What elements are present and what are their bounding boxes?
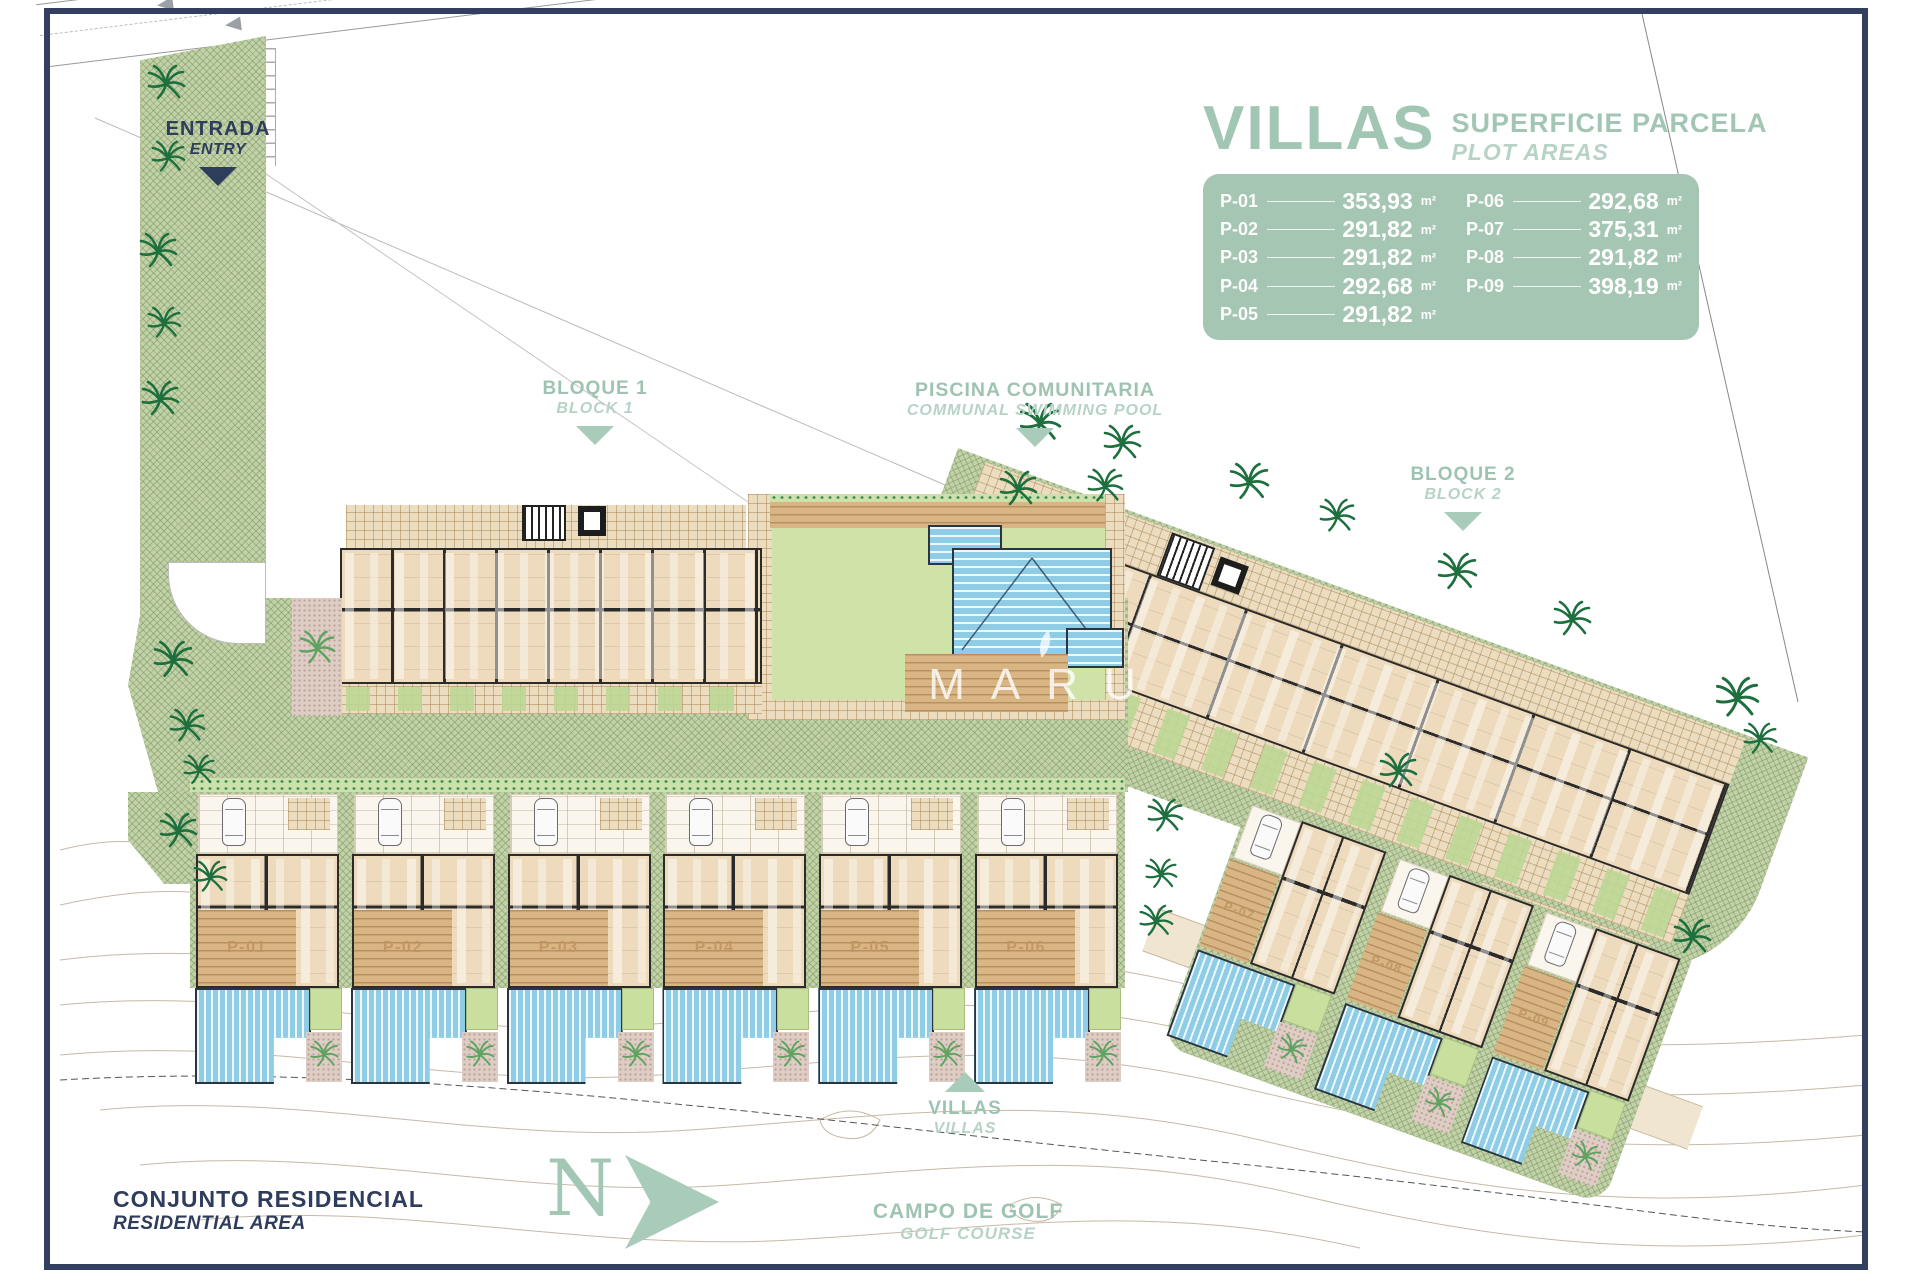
lawn-patch (622, 988, 654, 1030)
pool-sign-title: PISCINA COMUNITARIA (900, 379, 1170, 402)
plot-area-unit: m² (1421, 279, 1436, 293)
plot-id: P-02 (1220, 219, 1260, 240)
villa-deck: P-03 (510, 910, 608, 986)
leader-line (1513, 257, 1581, 258)
plot-id: P-06 (1466, 191, 1506, 212)
palm-tree-icon (182, 754, 216, 788)
plot-id: P-08 (1466, 247, 1506, 268)
villas-sign: VILLAS VILLAS (905, 1072, 1025, 1138)
block2-sign-title: BLOQUE 2 (1350, 464, 1576, 486)
north-arrow: N (546, 1150, 719, 1254)
leader-line (1513, 286, 1581, 287)
palm-tree-icon (1742, 722, 1778, 758)
legend-row-p-04: P-04 292,68 m² (1220, 272, 1436, 300)
lawn-patch (933, 988, 965, 1030)
plot-id: P-05 (1220, 304, 1260, 325)
courtyard (292, 598, 342, 716)
plot-area-unit: m² (1421, 251, 1436, 265)
plot-area-unit: m² (1667, 194, 1682, 208)
plot-id: P-03 (1220, 247, 1260, 268)
block1-lift (578, 506, 606, 536)
lawn-patch (310, 988, 342, 1030)
entry-sign-title: ENTRADA (153, 118, 283, 141)
palm-tree-icon (1714, 676, 1760, 722)
plot-area-value: 398,19 (1588, 273, 1658, 300)
palm-tree-icon (1672, 918, 1712, 958)
pergola (755, 798, 797, 830)
plot-label-p-04: P-04 (665, 910, 763, 986)
plot-area-unit: m² (1667, 223, 1682, 237)
tree-icon (309, 1040, 339, 1070)
patio (1085, 1032, 1121, 1082)
block2-sign: BLOQUE 2 BLOCK 2 (1350, 464, 1576, 531)
plot-label-p-05: P-05 (821, 910, 919, 986)
leader-line (1267, 229, 1335, 230)
legend-title: VILLAS (1203, 100, 1435, 159)
pergola (600, 798, 642, 830)
tree-icon (932, 1040, 962, 1070)
block2-sign-subtitle: BLOCK 2 (1350, 486, 1576, 504)
arrow-down-icon (1016, 428, 1054, 447)
golf-sign-subtitle: GOLF COURSE (848, 1224, 1088, 1244)
north-letter: N (546, 1144, 614, 1234)
car-icon (689, 798, 713, 846)
site-plan-page: { "legend": { "title": "VILLAS", "subtit… (0, 0, 1920, 1280)
tree-icon (1566, 1138, 1604, 1176)
legend-subtitle: SUPERFICIE PARCELA (1451, 108, 1767, 139)
pool-sign: PISCINA COMUNITARIA COMMUNAL SWIMMING PO… (900, 379, 1170, 447)
villas-sign-subtitle: VILLAS (905, 1120, 1025, 1138)
block1-stair (522, 505, 566, 541)
arrow-down-icon (576, 426, 614, 445)
entry-sign-subtitle: ENTRY (153, 141, 283, 159)
tree-icon (1272, 1031, 1310, 1069)
palm-tree-icon (1378, 752, 1418, 792)
leader-line (1267, 314, 1335, 315)
plot-area-value: 291,82 (1588, 244, 1658, 271)
villas-row1: P-01 P-02 P-03 (190, 792, 1125, 1092)
villa-deck: P-04 (665, 910, 763, 986)
legend-row-p-07: P-07 375,31 m² (1466, 215, 1682, 243)
tree-icon (1419, 1084, 1457, 1122)
plot-area-value: 291,82 (1342, 216, 1412, 243)
villa-unit-p-02: P-02 (346, 792, 502, 1092)
villa-pool (818, 988, 934, 1084)
palm-tree-icon (146, 306, 182, 342)
north-arrow-icon (625, 1150, 719, 1254)
palm-tree-icon (1552, 600, 1592, 640)
villa-unit-p-05: P-05 (813, 792, 969, 1092)
patio (306, 1032, 342, 1082)
car-icon (534, 798, 558, 846)
plot-area-unit: m² (1421, 308, 1436, 322)
villa-deck: P-01 (198, 910, 296, 986)
plot-area-unit: m² (1421, 194, 1436, 208)
palm-tree-icon (998, 470, 1038, 510)
arrow-up-icon (945, 1072, 985, 1092)
legend-row-p-02: P-02 291,82 m² (1220, 215, 1436, 243)
villa-unit-p-03: P-03 (502, 792, 658, 1092)
patio (773, 1032, 809, 1082)
watermark-text: MARU (928, 660, 1162, 709)
golf-sign-title: CAMPO DE GOLF (848, 1200, 1088, 1224)
villa-pool (974, 988, 1090, 1084)
brand-watermark: MARU (880, 628, 1210, 710)
palm-tree-icon (1144, 858, 1178, 892)
patio (618, 1032, 654, 1082)
legend-column-2: P-06 292,68 m² P-07 375,31 m² P-08 291,8… (1466, 187, 1682, 329)
plot-label-p-06: P-06 (977, 910, 1075, 986)
tree-icon (776, 1040, 806, 1070)
plot-label-p-01: P-01 (198, 910, 296, 986)
arrow-down-icon (199, 167, 237, 186)
legend-row-p-06: P-06 292,68 m² (1466, 187, 1682, 215)
legend-row-p-01: P-01 353,93 m² (1220, 187, 1436, 215)
palm-tree-icon (1138, 904, 1174, 940)
villa-pool (507, 988, 623, 1084)
tree-icon (298, 630, 336, 668)
palm-tree-icon (1436, 552, 1478, 594)
plot-id: P-04 (1220, 276, 1260, 297)
car-icon (378, 798, 402, 846)
residential-sign-title: CONJUNTO RESIDENCIAL (113, 1186, 424, 1213)
entry-sign: ENTRADA ENTRY (153, 118, 283, 186)
pergola (444, 798, 486, 830)
plot-area-unit: m² (1421, 223, 1436, 237)
legend-subtitle-en: PLOT AREAS (1451, 139, 1767, 166)
golf-sign: CAMPO DE GOLF GOLF COURSE (848, 1200, 1088, 1244)
arrow-down-icon (1444, 512, 1482, 531)
plot-id: P-07 (1466, 219, 1506, 240)
tree-icon (621, 1040, 651, 1070)
legend-column-1: P-01 353,93 m² P-02 291,82 m² P-03 291,8… (1220, 187, 1436, 329)
leaf-icon (1028, 628, 1062, 658)
villa-deck: P-02 (354, 910, 452, 986)
villa-unit-p-04: P-04 (657, 792, 813, 1092)
block1-sign: BLOQUE 1 BLOCK 1 (533, 378, 657, 445)
block1-sign-title: BLOQUE 1 (533, 378, 657, 400)
villa-pool (351, 988, 467, 1084)
block1-garden-terrace (340, 684, 762, 714)
pool-deck-top (770, 498, 1105, 528)
plot-label-p-02: P-02 (354, 910, 452, 986)
leader-line (1267, 201, 1335, 202)
villa-deck: P-06 (977, 910, 1075, 986)
car-icon (845, 798, 869, 846)
plot-area-unit: m² (1667, 251, 1682, 265)
villa-unit-p-01: P-01 (190, 792, 346, 1092)
palm-tree-icon (158, 812, 198, 852)
tree-icon (1088, 1040, 1118, 1070)
plot-id: P-01 (1220, 191, 1260, 212)
legend: VILLAS SUPERFICIE PARCELA PLOT AREAS P-0… (1203, 100, 1767, 340)
plot-id: P-09 (1466, 276, 1506, 297)
plot-area-value: 375,31 (1588, 216, 1658, 243)
legend-row-p-05: P-05 291,82 m² (1220, 301, 1436, 329)
palm-tree-icon (1086, 468, 1124, 506)
plot-area-value: 291,82 (1342, 244, 1412, 271)
leader-line (1267, 257, 1335, 258)
palm-tree-icon (1228, 462, 1270, 504)
villa-pool (662, 988, 778, 1084)
car-icon (222, 798, 246, 846)
palm-tree-icon (1146, 798, 1184, 836)
leader-line (1513, 229, 1581, 230)
pergola (288, 798, 330, 830)
villa-pool (195, 988, 311, 1084)
legend-panel: P-01 353,93 m² P-02 291,82 m² P-03 291,8… (1203, 174, 1699, 340)
road-arrow-icon (224, 16, 242, 32)
leader-line (1513, 201, 1581, 202)
palm-tree-icon (168, 708, 206, 746)
plot-area-value: 292,68 (1342, 273, 1412, 300)
legend-row-p-09: P-09 398,19 m² (1466, 272, 1682, 300)
palm-tree-icon (146, 64, 186, 104)
tree-icon (465, 1040, 495, 1070)
villa-unit-p-06: P-06 (969, 792, 1125, 1092)
pergola (1067, 798, 1109, 830)
palm-tree-icon (152, 640, 194, 682)
hedge-strip (190, 778, 1125, 792)
block1-building (340, 548, 762, 684)
legend-row-p-03: P-03 291,82 m² (1220, 244, 1436, 272)
residential-sign-subtitle: RESIDENTIAL AREA (113, 1213, 424, 1235)
patio (462, 1032, 498, 1082)
palm-tree-icon (140, 380, 180, 420)
legend-row-p-08: P-08 291,82 m² (1466, 244, 1682, 272)
plot-area-value: 292,68 (1588, 188, 1658, 215)
villa-deck: P-05 (821, 910, 919, 986)
pergola (911, 798, 953, 830)
road-arrow-icon (156, 0, 174, 12)
block1-sign-subtitle: BLOCK 1 (533, 400, 657, 418)
plot-area-value: 291,82 (1342, 301, 1412, 328)
pool-sign-subtitle: COMMUNAL SWIMMING POOL (900, 402, 1170, 420)
leader-line (1267, 286, 1335, 287)
lawn-patch (466, 988, 498, 1030)
lawn-patch (1089, 988, 1121, 1030)
palm-tree-icon (138, 232, 178, 272)
plot-label-p-03: P-03 (510, 910, 608, 986)
lawn-patch (777, 988, 809, 1030)
plot-area-unit: m² (1667, 279, 1682, 293)
palm-tree-icon (192, 860, 228, 896)
car-icon (1001, 798, 1025, 846)
plot-area-value: 353,93 (1342, 188, 1412, 215)
residential-sign: CONJUNTO RESIDENCIAL RESIDENTIAL AREA (113, 1186, 424, 1235)
villas-sign-title: VILLAS (905, 1098, 1025, 1120)
